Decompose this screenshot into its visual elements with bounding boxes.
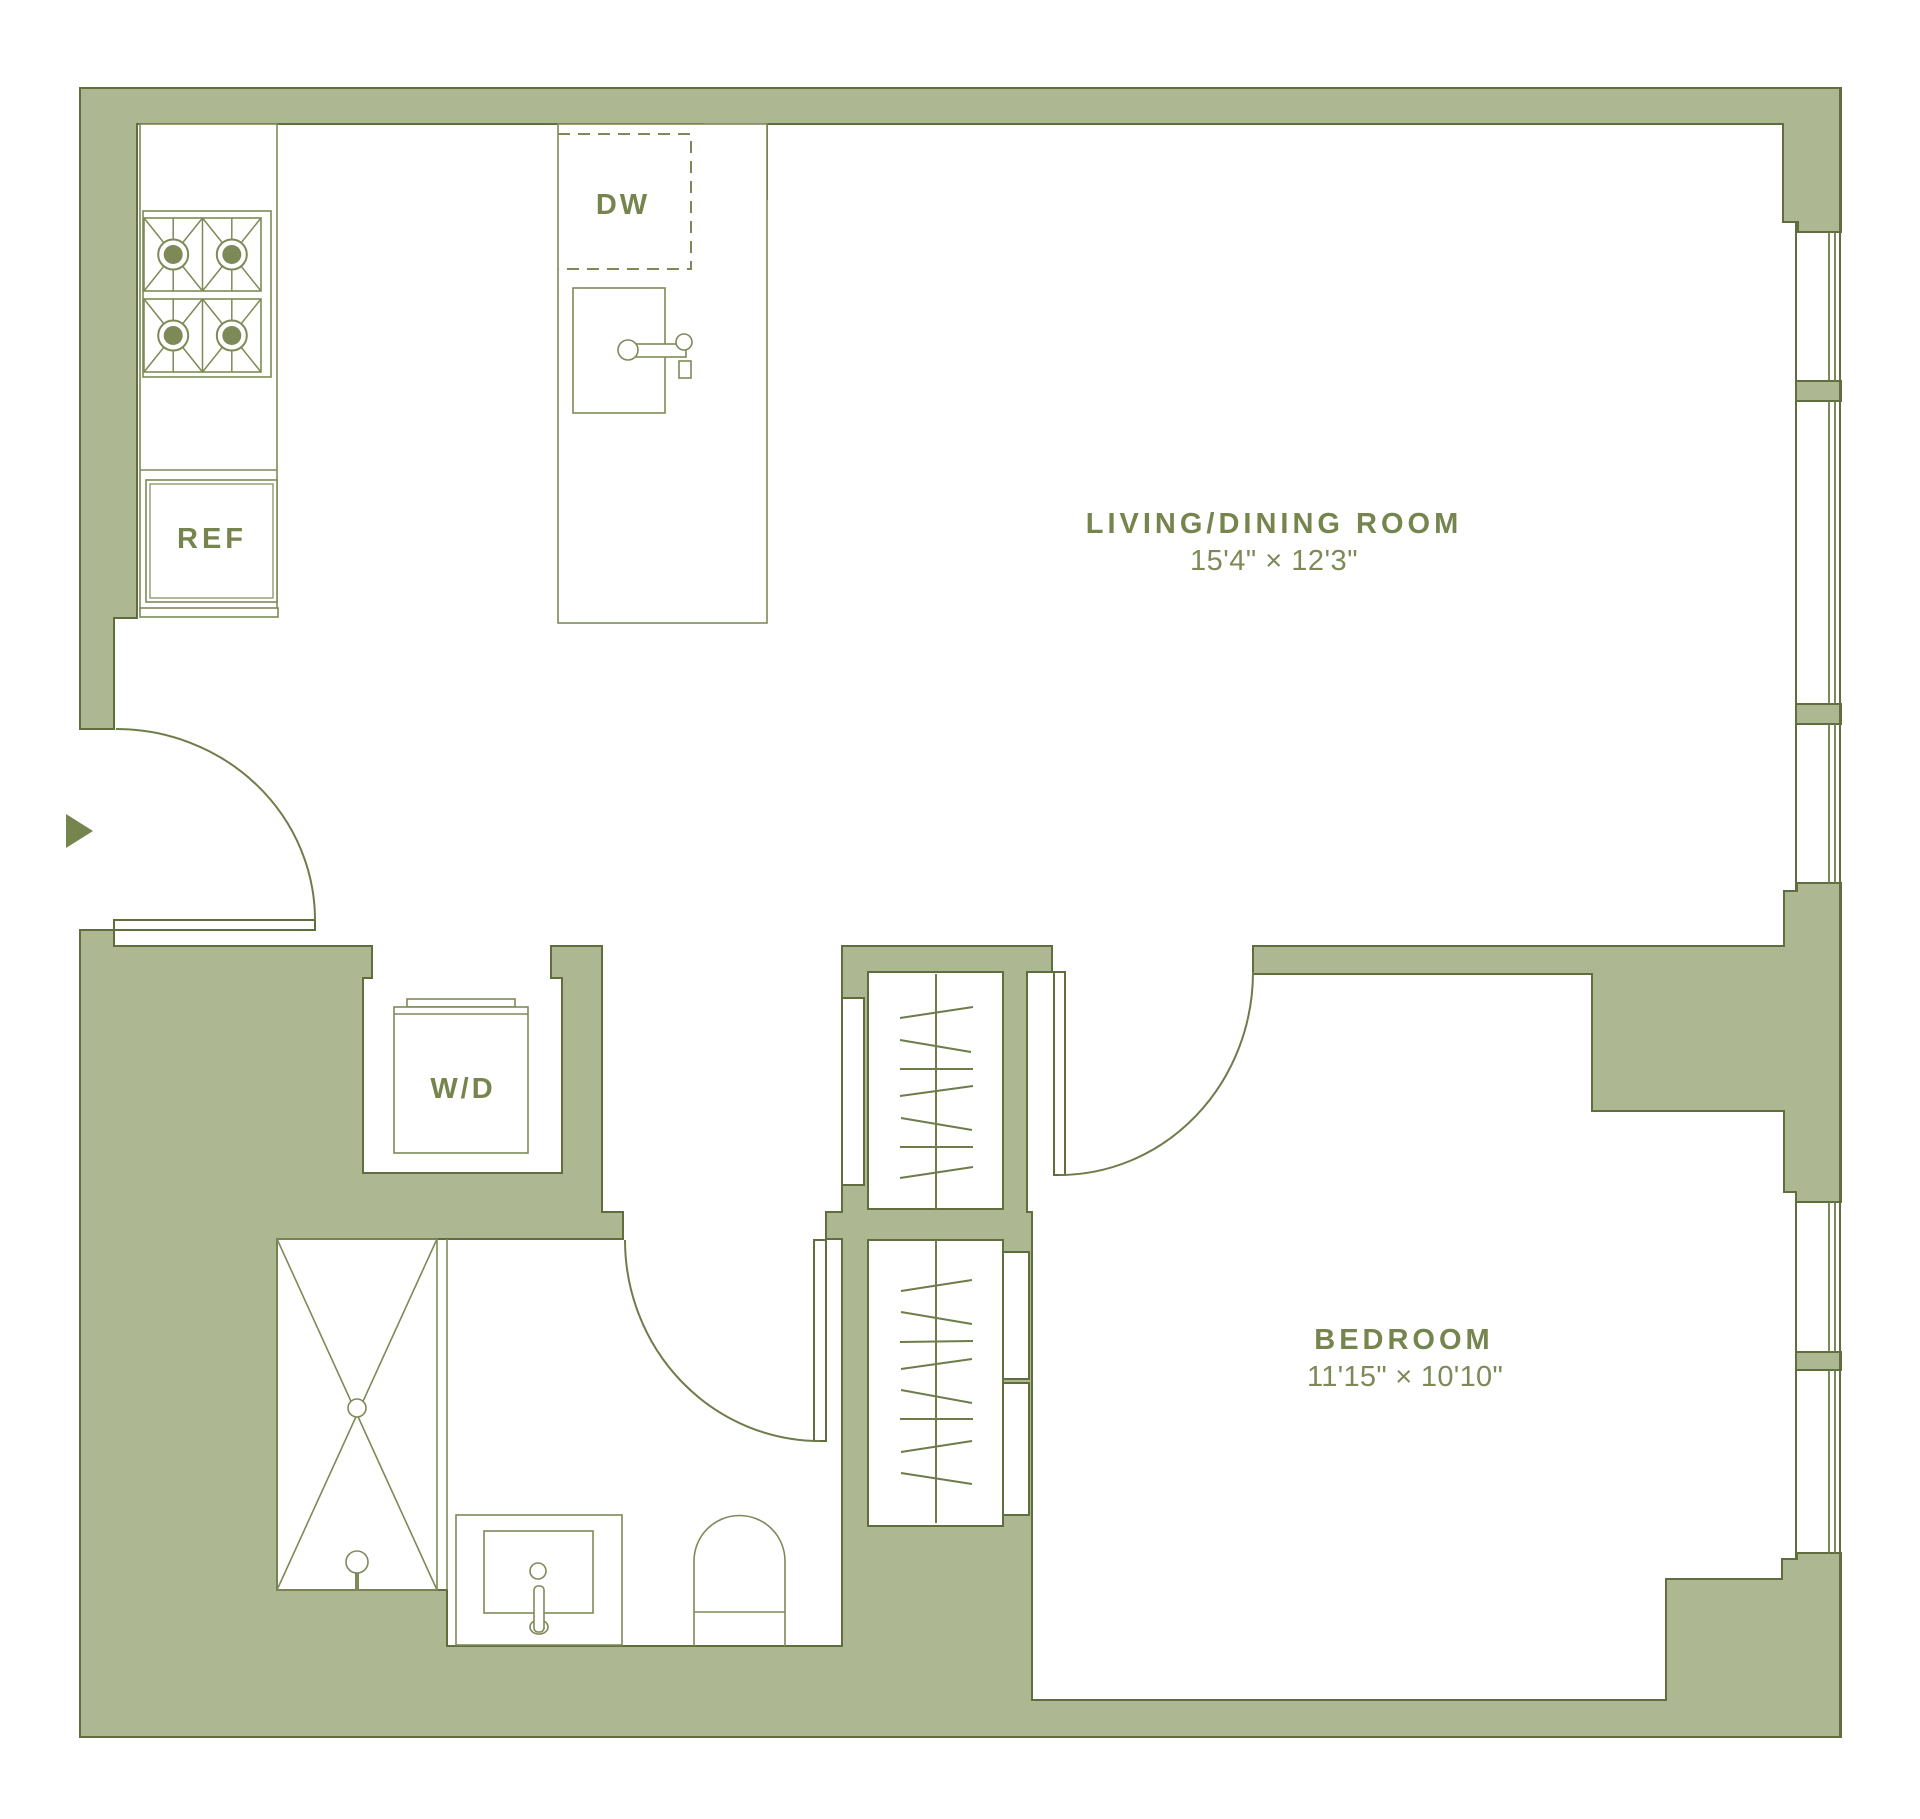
svg-text:11'15" × 10'10": 11'15" × 10'10"	[1307, 1361, 1503, 1393]
svg-text:REF: REF	[177, 523, 247, 555]
svg-text:BEDROOM: BEDROOM	[1314, 1324, 1493, 1356]
svg-text:W/D: W/D	[430, 1073, 495, 1105]
svg-text:15'4" × 12'3": 15'4" × 12'3"	[1190, 545, 1358, 577]
svg-text:LIVING/DINING ROOM: LIVING/DINING ROOM	[1086, 508, 1463, 540]
svg-text:DW: DW	[596, 189, 650, 221]
